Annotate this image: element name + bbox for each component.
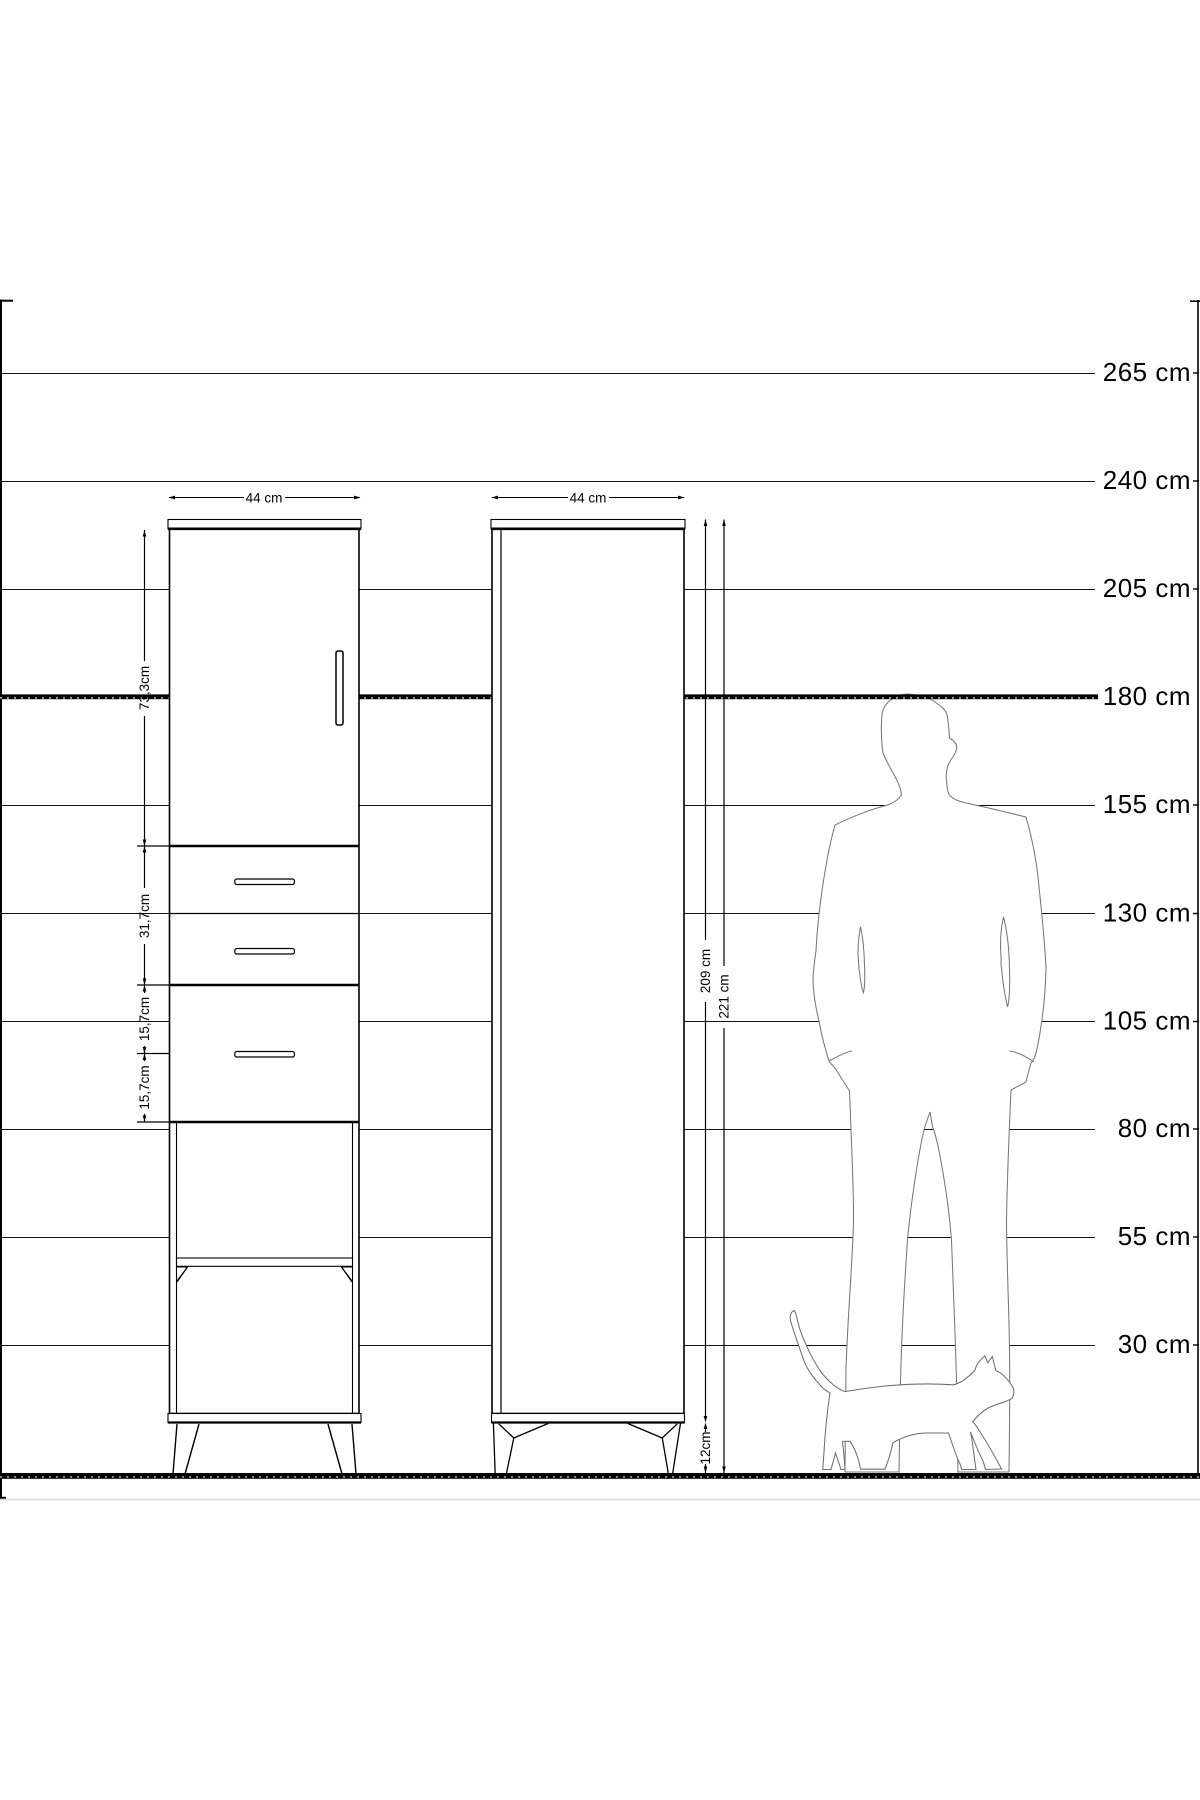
- svg-text:15,7cm: 15,7cm: [137, 1065, 152, 1109]
- svg-text:55 cm: 55 cm: [1118, 1221, 1191, 1251]
- svg-text:130 cm: 130 cm: [1103, 898, 1191, 928]
- svg-text:180 cm: 180 cm: [1103, 681, 1191, 711]
- svg-text:209 cm: 209 cm: [698, 949, 713, 993]
- svg-text:31,7cm: 31,7cm: [137, 894, 152, 938]
- svg-text:44 cm: 44 cm: [570, 491, 607, 506]
- svg-text:221 cm: 221 cm: [717, 974, 732, 1018]
- svg-text:30 cm: 30 cm: [1118, 1329, 1191, 1359]
- svg-text:80 cm: 80 cm: [1118, 1113, 1191, 1143]
- svg-text:240 cm: 240 cm: [1103, 465, 1191, 495]
- svg-text:15,7cm: 15,7cm: [137, 997, 152, 1041]
- svg-text:73,3cm: 73,3cm: [137, 666, 152, 710]
- svg-text:265 cm: 265 cm: [1103, 357, 1191, 387]
- svg-text:105 cm: 105 cm: [1103, 1006, 1191, 1036]
- svg-text:44 cm: 44 cm: [246, 491, 283, 506]
- svg-text:205 cm: 205 cm: [1103, 573, 1191, 603]
- svg-text:12cm: 12cm: [698, 1431, 713, 1464]
- svg-text:155 cm: 155 cm: [1103, 789, 1191, 819]
